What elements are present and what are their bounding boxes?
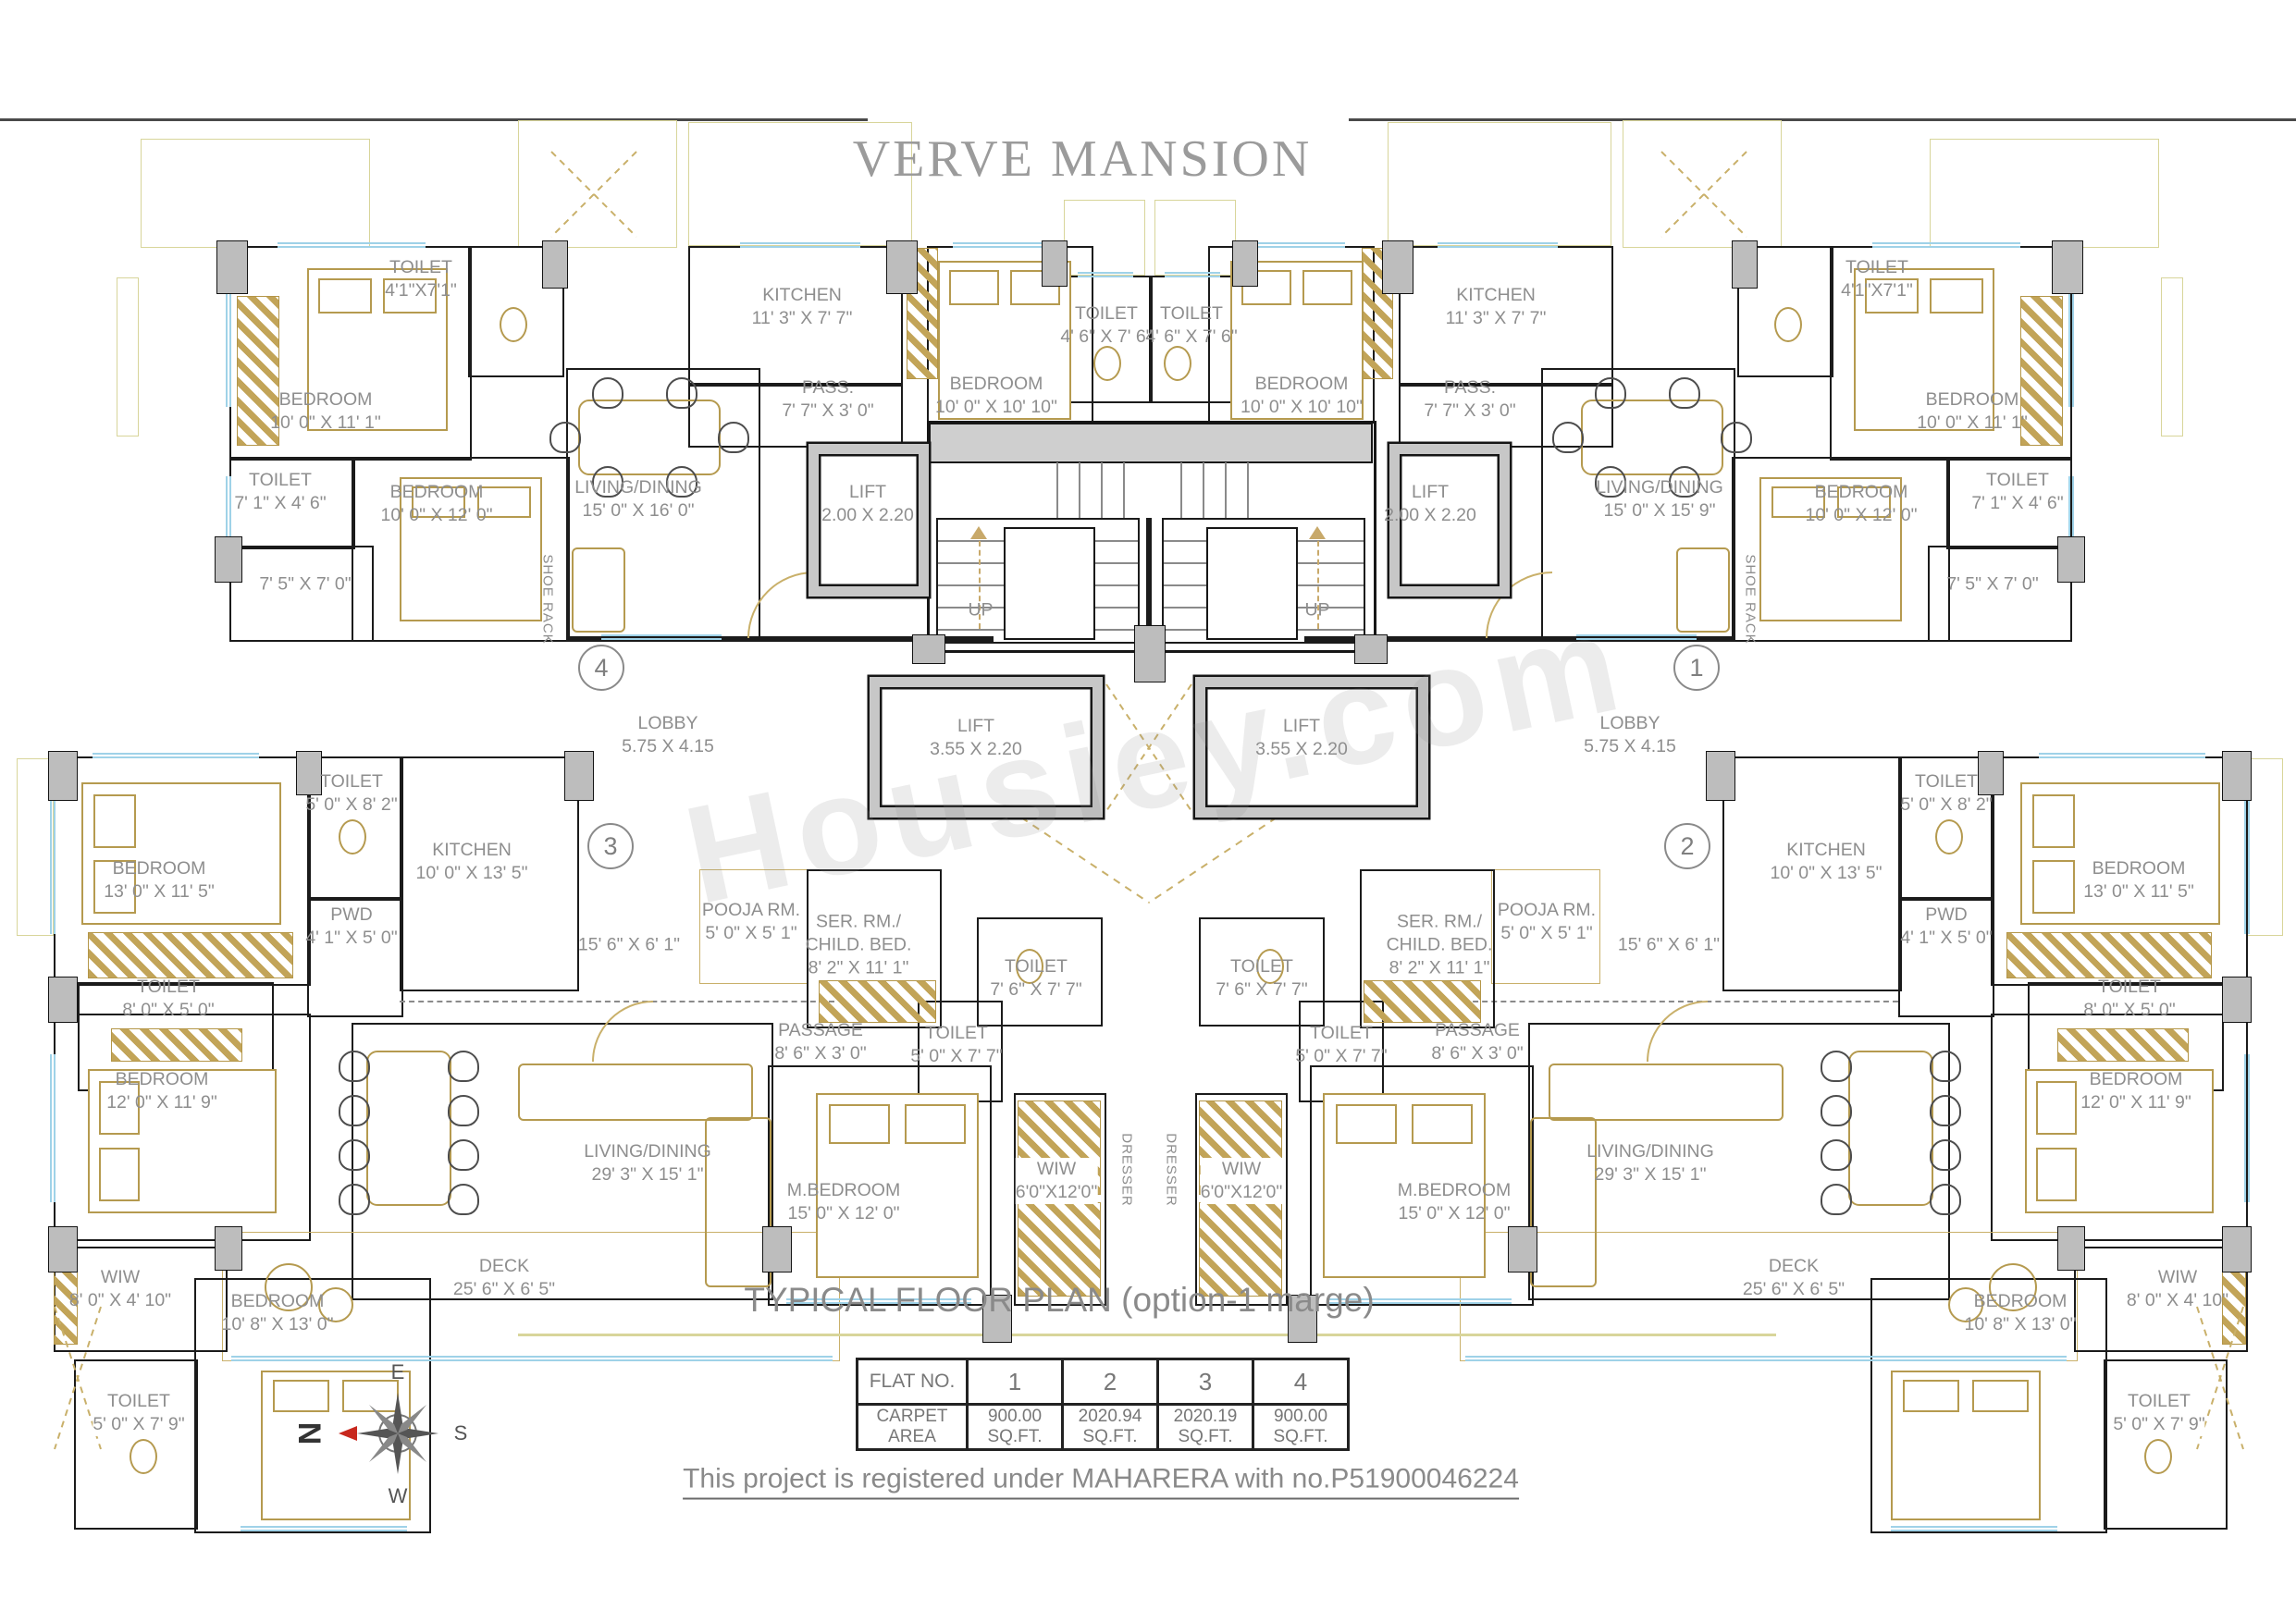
sofa-icon bbox=[1549, 1064, 1784, 1121]
room-label-pooja: POOJA RM.5' 0" X 5' 1" bbox=[1498, 899, 1596, 945]
room-label-bedroom: BEDROOM10' 0" X 11' 1" bbox=[1917, 388, 2028, 435]
flat4-marker: 4 bbox=[578, 645, 624, 691]
corridor-dashed-line bbox=[400, 1001, 834, 1002]
room-label-bedroom: BEDROOM12' 0" X 11' 9" bbox=[2080, 1068, 2191, 1114]
toilet-wc-icon bbox=[1093, 346, 1121, 381]
room-label-pwd: PWD4' 1" X 5' 0" bbox=[305, 904, 397, 950]
window bbox=[231, 1356, 833, 1361]
room-label-wiw: WIW8' 0" X 4' 10" bbox=[69, 1266, 171, 1312]
window bbox=[2039, 753, 2205, 758]
column bbox=[2052, 240, 2083, 294]
room-label-serrm: SER. RM./CHILD. BED.8' 2" X 11' 1" bbox=[806, 911, 912, 980]
flat-no-cell: 4 bbox=[1253, 1359, 1349, 1405]
window bbox=[50, 1054, 56, 1202]
room-label-passage: PASSAGE8' 6" X 3' 0" bbox=[1431, 1019, 1523, 1065]
column bbox=[1508, 1226, 1537, 1273]
window bbox=[953, 242, 1055, 248]
room-label-dress: 7' 5" X 7' 0" bbox=[1946, 573, 2038, 596]
room-label-wiw: WIW6'0"X12'0" bbox=[1016, 1158, 1098, 1204]
room-label-wiw: WIW8' 0" X 4' 10" bbox=[2127, 1266, 2228, 1312]
room-label-toilet: TOILET4' 6" X 7' 6" bbox=[1060, 302, 1152, 349]
room-label-wiw: WIW6'0"X12'0" bbox=[1201, 1158, 1283, 1204]
balcony-outline bbox=[1930, 139, 2159, 248]
sofa-icon bbox=[572, 547, 625, 633]
room-label-deck: DECK25' 6" X 6' 5" bbox=[1743, 1255, 1845, 1301]
dining-table-icon bbox=[339, 1028, 477, 1224]
room-label-toilet: TOILET4'1"X7'1" bbox=[1841, 256, 1913, 302]
window bbox=[1872, 242, 2020, 248]
compass-north-label: N bbox=[293, 1422, 329, 1445]
duct-outline bbox=[2246, 758, 2283, 936]
dining-table-icon bbox=[1821, 1028, 1959, 1224]
room-label-lift: LIFT2.00 X 2.20 bbox=[1384, 481, 1476, 527]
shoe-rack-label: SHOE RACK bbox=[540, 554, 556, 644]
column bbox=[2222, 751, 2252, 801]
room-label-living: LIVING/DINING15' 0" X 16' 0" bbox=[574, 476, 702, 523]
column bbox=[1134, 625, 1166, 682]
dresser-label: DRESSER bbox=[1164, 1133, 1179, 1207]
toilet-wc-icon bbox=[1164, 346, 1191, 381]
window bbox=[1078, 272, 1133, 277]
flat-no-cell: 3 bbox=[1158, 1359, 1253, 1405]
room-label-bedroom: BEDROOM10' 8" X 13' 0" bbox=[1964, 1290, 2076, 1336]
table-row: CARPET AREA 900.00 SQ.FT. 2020.94 SQ.FT.… bbox=[858, 1405, 1349, 1450]
footer-rule bbox=[518, 1334, 1776, 1336]
balcony-outline bbox=[141, 139, 370, 248]
compass-west-label: W bbox=[389, 1484, 408, 1508]
room-label-bedroom: BEDROOM10' 0" X 10' 10" bbox=[1241, 373, 1363, 419]
room-label-living: LIVING/DINING15' 0" X 15' 9" bbox=[1596, 476, 1723, 523]
room-label-bedroom: BEDROOM10' 8" X 13' 0" bbox=[221, 1290, 333, 1336]
window bbox=[740, 242, 860, 248]
room-label-bedroom: BEDROOM10' 0" X 12' 0" bbox=[1805, 481, 1917, 527]
carpet-area-cell: 900.00 SQ.FT. bbox=[968, 1405, 1063, 1450]
window bbox=[1465, 1356, 2067, 1361]
room-label-toilet: TOILET5' 0" X 8' 2" bbox=[305, 770, 397, 817]
stair-landing bbox=[929, 423, 1373, 463]
flat3-marker: 3 bbox=[587, 823, 634, 869]
room-label-toilet: TOILET4' 6" X 7' 6" bbox=[1145, 302, 1237, 349]
toilet-wc-icon bbox=[500, 307, 527, 342]
column bbox=[886, 240, 918, 294]
wardrobe-hatch bbox=[2006, 932, 2212, 978]
room-label-pass: PASS.7' 7" X 3' 0" bbox=[1424, 376, 1515, 423]
room-label-living: LIVING/DINING29' 3" X 15' 1" bbox=[584, 1140, 711, 1187]
flat-no-cell: 2 bbox=[1063, 1359, 1158, 1405]
table-header-flat-no: FLAT NO. bbox=[858, 1359, 968, 1405]
window bbox=[93, 753, 259, 758]
column bbox=[762, 1226, 792, 1273]
room-label-bedroom: BEDROOM10' 0" X 12' 0" bbox=[380, 481, 492, 527]
column bbox=[542, 240, 568, 289]
column bbox=[48, 977, 78, 1023]
window bbox=[1243, 242, 1345, 248]
room-label-dress: 7' 5" X 7' 0" bbox=[259, 573, 351, 596]
room-label-kitchen: KITCHEN11' 3" X 7' 7" bbox=[1446, 284, 1547, 330]
window bbox=[1438, 242, 1558, 248]
duct-outline bbox=[117, 277, 139, 436]
sofa-icon bbox=[518, 1064, 753, 1121]
toilet-wc-icon bbox=[130, 1439, 157, 1474]
room-label-toilet: TOILET5' 0" X 7' 7" bbox=[1295, 1022, 1387, 1068]
stair-newel bbox=[1206, 527, 1298, 640]
north-arrow-icon bbox=[331, 1426, 357, 1441]
duct-x-icon bbox=[1658, 148, 1750, 240]
room-label-lift: LIFT2.00 X 2.20 bbox=[821, 481, 914, 527]
room-label-bedroom: BEDROOM13' 0" X 11' 5" bbox=[104, 857, 215, 904]
wardrobe-hatch bbox=[2057, 1028, 2189, 1062]
toilet-wc-icon bbox=[339, 819, 366, 855]
table-header-carpet-area: CARPET AREA bbox=[858, 1405, 968, 1450]
toilet-wc-icon bbox=[2144, 1439, 2172, 1474]
room-label-corridor: 15' 6" X 6' 1" bbox=[1618, 934, 1720, 957]
column bbox=[2222, 977, 2252, 1023]
stair-up-label: UP bbox=[1304, 599, 1329, 622]
wardrobe-hatch bbox=[111, 1028, 242, 1062]
room-label-serrm: SER. RM./CHILD. BED.8' 2" X 11' 1" bbox=[1387, 911, 1493, 980]
room-label-mbedroom: M.BEDROOM15' 0" X 12' 0" bbox=[1398, 1179, 1511, 1225]
window bbox=[2244, 1054, 2250, 1202]
stair-treads bbox=[1036, 462, 1138, 518]
room-label-toilet: TOILET7' 6" X 7' 7" bbox=[1216, 955, 1307, 1002]
plan-title: TYPICAL FLOOR PLAN (option-1 marge) bbox=[744, 1281, 1374, 1320]
room-label-toilet: TOILET8' 0" X 5' 0" bbox=[122, 976, 214, 1022]
room-label-toilet: TOILET4'1"X7'1" bbox=[385, 256, 457, 302]
window bbox=[2068, 287, 2074, 407]
sofa-icon bbox=[1676, 547, 1730, 633]
column bbox=[2057, 1226, 2085, 1271]
window bbox=[1891, 1526, 2057, 1531]
room-label-toilet: TOILET7' 1" X 4' 6" bbox=[1971, 469, 2063, 515]
stair-newel bbox=[1004, 527, 1095, 640]
balcony-outline bbox=[1388, 122, 1611, 246]
flat-no-cell: 1 bbox=[968, 1359, 1063, 1405]
dresser-label: DRESSER bbox=[1119, 1133, 1135, 1207]
room-label-mbedroom: M.BEDROOM15' 0" X 12' 0" bbox=[787, 1179, 900, 1225]
column bbox=[48, 751, 78, 801]
window bbox=[1165, 272, 1220, 277]
column bbox=[2057, 536, 2085, 583]
window bbox=[226, 287, 231, 407]
duct-outline bbox=[2161, 277, 2183, 436]
column bbox=[1042, 240, 1068, 287]
carpet-area-table: FLAT NO. 1 2 3 4 CARPET AREA 900.00 SQ.F… bbox=[856, 1358, 1350, 1451]
corridor-dashed-line bbox=[1463, 1001, 1898, 1002]
stair-treads bbox=[1160, 462, 1262, 518]
room-label-kitchen: KITCHEN11' 3" X 7' 7" bbox=[752, 284, 853, 330]
room-label-toilet: TOILET5' 0" X 7' 7" bbox=[910, 1022, 1002, 1068]
carpet-area-cell: 2020.19 SQ.FT. bbox=[1158, 1405, 1253, 1450]
room-label-pwd: PWD4' 1" X 5' 0" bbox=[1900, 904, 1992, 950]
door-arc-icon bbox=[592, 1001, 653, 1062]
column bbox=[912, 634, 945, 664]
column bbox=[564, 751, 594, 801]
window bbox=[241, 1526, 407, 1531]
column bbox=[215, 1226, 242, 1271]
up-arrowhead-icon bbox=[1309, 518, 1326, 539]
room-label-pass: PASS.7' 7" X 3' 0" bbox=[782, 376, 873, 423]
wardrobe-hatch bbox=[819, 980, 936, 1023]
window bbox=[2244, 795, 2250, 934]
room-label-living: LIVING/DINING29' 3" X 15' 1" bbox=[1586, 1140, 1714, 1187]
flat1-marker: 1 bbox=[1673, 645, 1720, 691]
room-label-bedroom: BEDROOM10' 0" X 10' 10" bbox=[935, 373, 1057, 419]
column bbox=[1732, 240, 1758, 289]
up-arrowhead-icon bbox=[970, 518, 987, 539]
carpet-area-cell: 900.00 SQ.FT. bbox=[1253, 1405, 1349, 1450]
bed-icon bbox=[1891, 1371, 2041, 1520]
room-label-deck: DECK25' 6" X 6' 5" bbox=[453, 1255, 555, 1301]
duct-x-icon bbox=[548, 148, 640, 240]
toilet-wc-icon bbox=[1935, 819, 1963, 855]
column bbox=[1382, 240, 1413, 294]
shoe-rack-label: SHOE RACK bbox=[1743, 554, 1759, 644]
stair-up-label: UP bbox=[968, 599, 993, 622]
compass-east-label: E bbox=[391, 1360, 405, 1384]
rera-registration-note: This project is registered under MAHARER… bbox=[683, 1464, 1519, 1500]
page-title: VERVE MANSION bbox=[853, 129, 1313, 189]
room-label-kitchen: KITCHEN10' 0" X 13' 5" bbox=[415, 839, 527, 885]
room-label-toilet: TOILET5' 0" X 8' 2" bbox=[1900, 770, 1992, 817]
room-label-passage: PASSAGE8' 6" X 3' 0" bbox=[774, 1019, 866, 1065]
flat2-marker: 2 bbox=[1664, 823, 1710, 869]
compass-rose-icon bbox=[355, 1391, 440, 1476]
toilet-wc-icon bbox=[1774, 307, 1802, 342]
room-label-toilet: TOILET5' 0" X 7' 9" bbox=[93, 1390, 184, 1436]
window bbox=[50, 795, 56, 934]
room-label-toilet: TOILET7' 1" X 4' 6" bbox=[234, 469, 326, 515]
wardrobe-hatch bbox=[88, 932, 293, 978]
column bbox=[216, 240, 248, 294]
room-label-kitchen: KITCHEN10' 0" X 13' 5" bbox=[1770, 839, 1882, 885]
table-row: FLAT NO. 1 2 3 4 bbox=[858, 1359, 1349, 1405]
room-label-bedroom: BEDROOM12' 0" X 11' 9" bbox=[106, 1068, 217, 1114]
door-arc-icon bbox=[1647, 1001, 1708, 1062]
header-rule-left bbox=[0, 118, 868, 121]
window bbox=[601, 634, 722, 640]
wardrobe-hatch bbox=[1364, 980, 1481, 1023]
room-label-bedroom: BEDROOM10' 0" X 11' 1" bbox=[270, 388, 381, 435]
floor-plan-sheet: VERVE MANSION Housiey.com bbox=[0, 0, 2296, 1623]
room-label-lobby: LOBBY5.75 X 4.15 bbox=[622, 712, 714, 758]
compass-south-label: S bbox=[454, 1421, 468, 1445]
room-label-toilet: TOILET8' 0" X 5' 0" bbox=[2083, 976, 2175, 1022]
room-label-toilet: TOILET7' 6" X 7' 7" bbox=[990, 955, 1081, 1002]
room-label-toilet: TOILET5' 0" X 7' 9" bbox=[2113, 1390, 2204, 1436]
column bbox=[215, 536, 242, 583]
window bbox=[278, 242, 426, 248]
room-label-bedroom: BEDROOM13' 0" X 11' 5" bbox=[2083, 857, 2194, 904]
column bbox=[1706, 751, 1735, 801]
column bbox=[1232, 240, 1258, 287]
room-label-corridor: 15' 6" X 6' 1" bbox=[578, 934, 680, 957]
header-rule-right bbox=[1349, 118, 2296, 121]
carpet-area-cell: 2020.94 SQ.FT. bbox=[1063, 1405, 1158, 1450]
